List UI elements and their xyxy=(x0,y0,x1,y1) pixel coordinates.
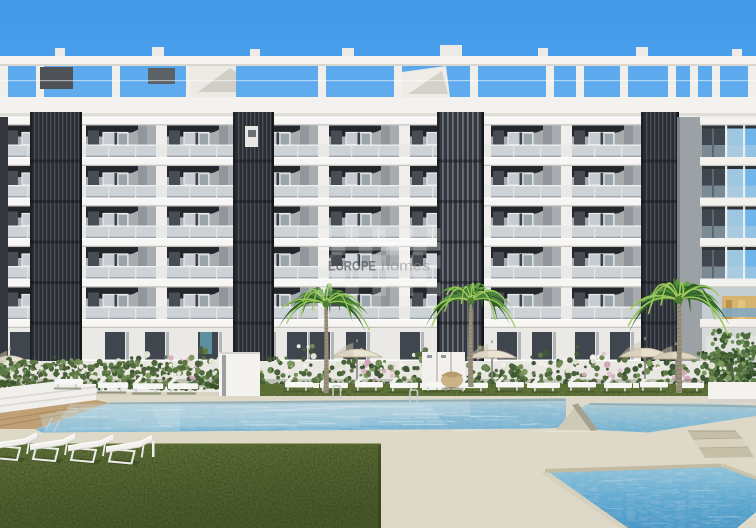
svg-text:homes: homes xyxy=(381,258,430,274)
svg-text:EUROPE: EUROPE xyxy=(328,258,376,274)
